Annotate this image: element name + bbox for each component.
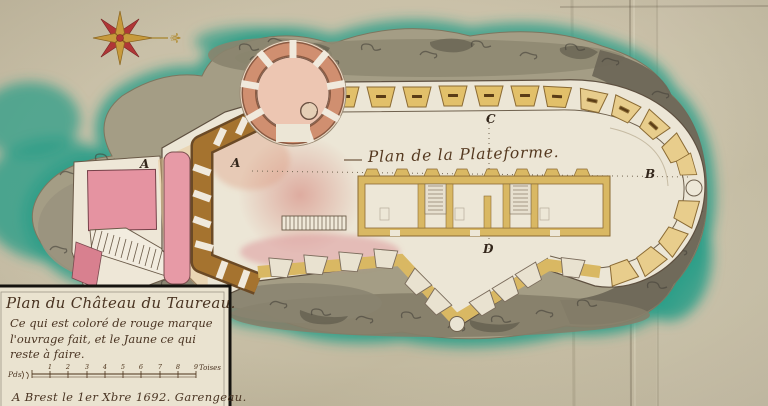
cartouche: Plan du Château du Taureau. Ce qui est c… (0, 286, 247, 406)
scale-tick-5: 5 (121, 363, 125, 371)
marker-b: B (644, 167, 655, 181)
scale-tick-3: 3 (85, 363, 89, 371)
barracks-building (358, 169, 610, 236)
cartouche-line-3: l'ouvrage fait, et le Jaune ce qui (10, 332, 196, 346)
scale-tick-9: 9 (194, 363, 198, 371)
scale-tick-4: 4 (102, 363, 107, 371)
scale-tick-6: 6 (139, 363, 143, 371)
cartouche-line-2: Ce qui est coloré de rouge marque (10, 316, 213, 330)
fortress-plan-photo: ⚜ Plan de la Plateforme. A A B C D Plan … (0, 0, 768, 406)
scale-tick-1: 1 (48, 363, 52, 371)
marker-c: C (486, 112, 496, 126)
fleur-de-lis-icon: ⚜ (166, 31, 184, 44)
courtyard-stair (282, 216, 346, 230)
marker-d: D (482, 242, 494, 256)
cartouche-line-4: reste à faire. (10, 347, 85, 361)
tower-spiral-stair (301, 103, 318, 120)
outwork-platform-red (87, 169, 156, 230)
marker-a1: A (139, 157, 149, 171)
east-turret (686, 180, 702, 196)
marker-a2: A (230, 156, 240, 170)
scale-unit-label: Toises (199, 364, 221, 372)
scale-tick-8: 8 (176, 363, 180, 371)
signature: A Brest le 1er Xbre 1692. Garengeau. (11, 390, 247, 404)
cartouche-line-1: Plan du Château du Taureau. (5, 294, 236, 312)
scale-tick-2: 2 (65, 363, 70, 371)
west-wall-red (164, 152, 190, 284)
plan-canvas: ⚜ Plan de la Plateforme. A A B C D Plan … (0, 0, 768, 406)
round-tower (240, 40, 346, 146)
scale-left-label: Pds (7, 370, 22, 379)
south-turret (450, 317, 465, 332)
